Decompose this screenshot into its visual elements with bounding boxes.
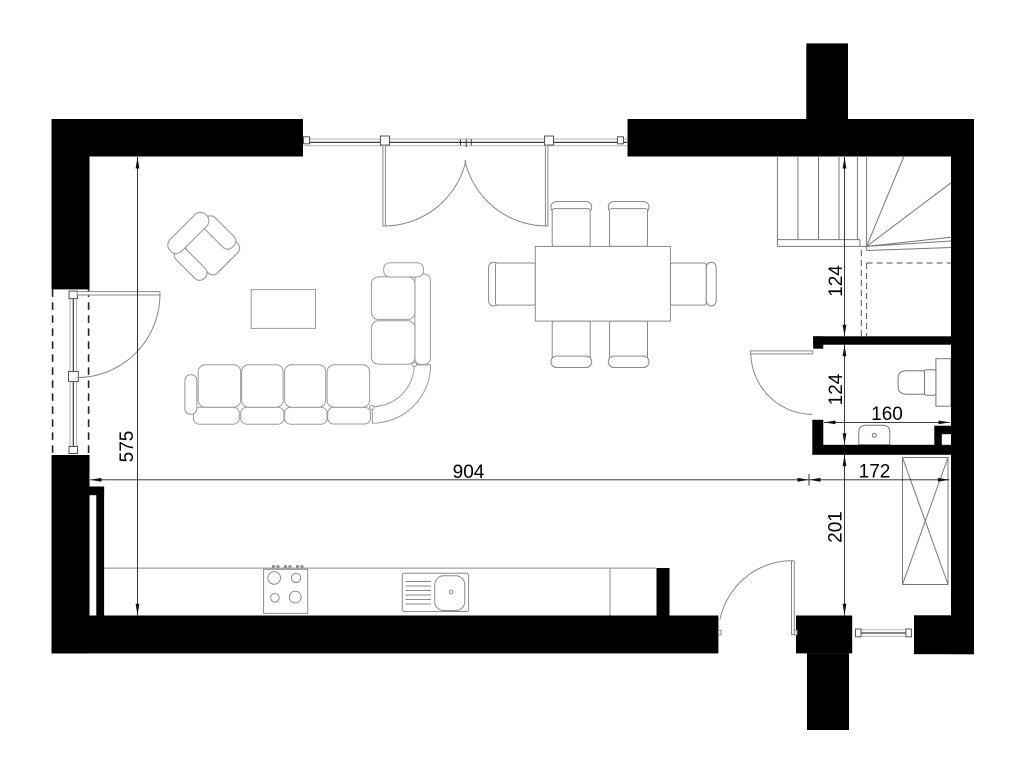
svg-text:575: 575 [117,431,138,463]
svg-text:124: 124 [826,265,847,297]
svg-text:904: 904 [453,462,485,483]
svg-text:160: 160 [871,404,903,425]
svg-text:124: 124 [826,373,847,405]
svg-text:201: 201 [826,511,847,543]
svg-text:172: 172 [859,462,891,483]
